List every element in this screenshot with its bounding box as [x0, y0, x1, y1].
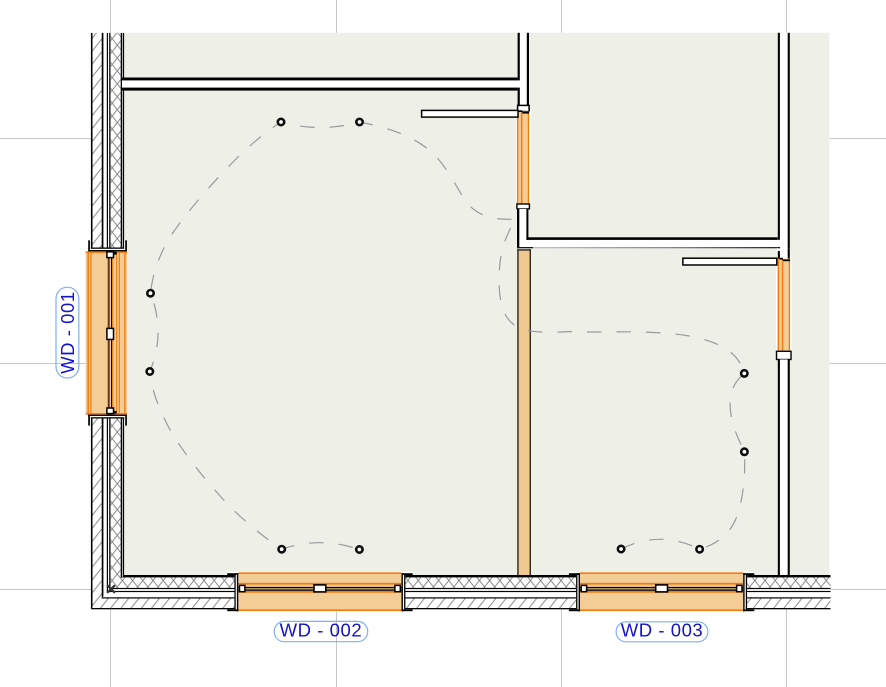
svg-text:WD - 003: WD - 003	[621, 619, 704, 640]
svg-text:WD - 001: WD - 001	[57, 291, 78, 374]
svg-text:WD - 002: WD - 002	[280, 619, 363, 640]
